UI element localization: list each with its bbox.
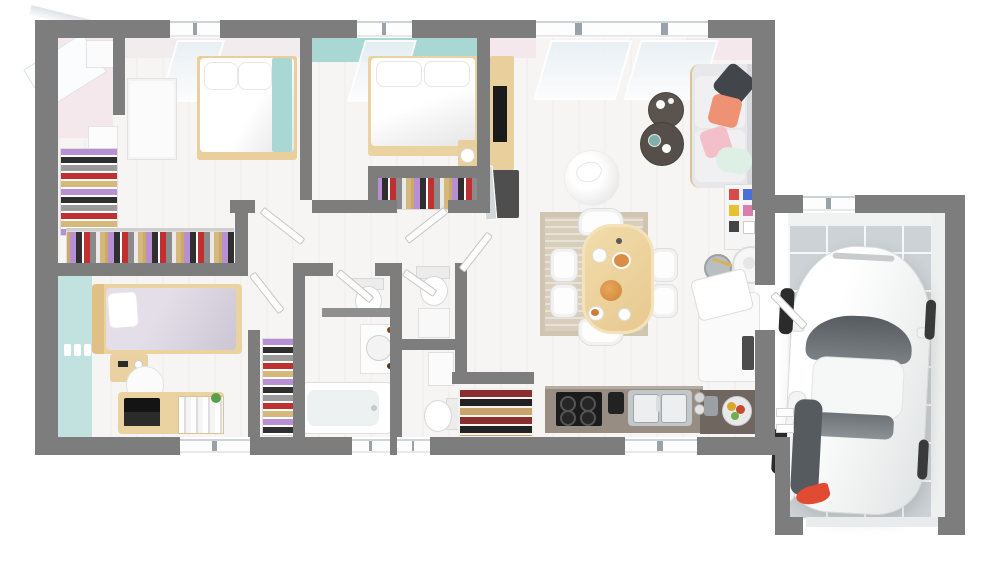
wall-pegs xyxy=(74,344,81,356)
wall-nook-stub xyxy=(113,33,125,115)
detergent xyxy=(743,221,755,234)
bed2-pillow xyxy=(376,61,422,87)
sink-unit xyxy=(628,390,692,426)
wall-hall-north xyxy=(312,200,397,213)
wall-bed2-closet-north xyxy=(368,166,477,178)
bed3-headboard xyxy=(92,284,104,354)
bed2-pillow xyxy=(424,61,470,87)
car xyxy=(777,242,939,519)
wall-shoe-closet-north xyxy=(452,372,534,384)
bread-boule xyxy=(600,280,622,301)
bed2-pot xyxy=(460,148,475,163)
burner xyxy=(580,410,596,426)
coffee-machine xyxy=(608,392,624,414)
car-roof xyxy=(810,356,905,421)
living-pink-wall-left xyxy=(490,38,536,58)
garage-wall-right xyxy=(945,195,965,535)
dining-chair xyxy=(650,284,678,318)
croissant xyxy=(591,309,599,316)
floor-plan xyxy=(0,0,1000,563)
stand-mixer xyxy=(704,396,718,416)
garage-wall-face-top xyxy=(788,213,945,226)
dish-orange xyxy=(612,252,631,269)
outer-wall-bottom xyxy=(390,437,397,455)
wall-pegs xyxy=(84,344,91,356)
shoe-shelf xyxy=(458,388,534,438)
wall-bed2-living xyxy=(477,38,490,213)
car-wheel xyxy=(924,299,936,339)
bathroom-shelf xyxy=(322,308,398,317)
pepper-dot xyxy=(616,238,622,244)
plate-small xyxy=(618,308,631,321)
bathtub xyxy=(298,382,396,434)
vanity-basin xyxy=(366,335,392,361)
wall-bathroom-west xyxy=(293,263,305,437)
window xyxy=(397,439,430,453)
garage-bracket xyxy=(776,424,794,433)
wall-pegs xyxy=(64,344,71,356)
garage-wall-left xyxy=(775,437,790,522)
car-wheel xyxy=(917,439,929,479)
washer-panel xyxy=(742,336,754,370)
plate-coffee xyxy=(592,248,607,263)
bedroom1-wardrobe xyxy=(127,78,177,160)
wall-bath-wc xyxy=(390,263,402,437)
car-door-glass xyxy=(790,399,823,496)
bedroom3-teal-wall xyxy=(58,276,92,437)
window-pane xyxy=(533,40,632,100)
plate-white xyxy=(662,144,671,153)
garage-window xyxy=(803,196,855,211)
phone xyxy=(118,361,128,367)
faucet xyxy=(656,396,660,412)
outer-wall-bottom xyxy=(697,437,775,455)
desk-plant xyxy=(211,393,221,403)
bathtub-drain xyxy=(371,405,377,411)
garage-wall-top xyxy=(775,195,803,213)
wall-bathroom-north xyxy=(293,263,333,276)
sink-basin xyxy=(661,394,687,423)
wall-wc-east xyxy=(455,263,467,384)
outer-wall-top xyxy=(220,20,357,38)
window xyxy=(622,21,708,37)
outer-wall-bottom xyxy=(35,437,180,455)
fruit xyxy=(731,412,739,420)
window xyxy=(180,439,250,453)
wall-bed1-bed2 xyxy=(300,38,312,200)
bathtub-basin xyxy=(307,390,379,426)
wall-dressing-bed3 xyxy=(58,263,248,276)
window xyxy=(352,439,390,453)
dressing-hanging-clothes xyxy=(66,231,236,264)
garage-shared-wall xyxy=(755,210,775,285)
wall-bed2-closet-stub xyxy=(368,166,378,212)
wall-bed3-closet xyxy=(248,330,260,437)
dressing-folded-clothes xyxy=(60,148,118,236)
laptop-keyboard xyxy=(124,412,160,426)
bed3-wardrobe xyxy=(262,338,296,436)
outer-wall-left xyxy=(35,20,58,455)
coffee-cup xyxy=(656,100,665,109)
burner xyxy=(560,410,576,426)
window xyxy=(170,21,220,37)
plate-green xyxy=(648,134,661,147)
bed3-pillow xyxy=(107,291,139,329)
garage-door-stub xyxy=(938,517,965,535)
wall-hall-north xyxy=(448,200,490,213)
laptop xyxy=(124,398,160,426)
wc2-toilet-bowl xyxy=(424,400,452,432)
outer-wall-right xyxy=(752,20,775,210)
bed1-pillow xyxy=(238,62,272,90)
garage-door-threshold xyxy=(806,517,938,527)
heater-cap xyxy=(743,257,755,269)
outer-wall-bottom xyxy=(430,437,625,455)
coffee-table-large xyxy=(640,122,684,166)
wc-cabinet xyxy=(418,308,450,338)
garage-shared-wall xyxy=(755,330,775,437)
window xyxy=(625,439,697,453)
garage-door-stub xyxy=(775,517,803,535)
tv-screen xyxy=(493,86,507,142)
bed1-teal-throw xyxy=(272,58,292,152)
detergent xyxy=(729,205,739,216)
window xyxy=(536,21,622,37)
coffee-cup xyxy=(668,98,674,104)
detergent xyxy=(729,189,739,200)
fruit xyxy=(727,402,736,411)
outer-wall-top xyxy=(412,20,536,38)
window xyxy=(357,21,412,37)
nook-cabinet xyxy=(86,40,116,68)
hob xyxy=(556,392,602,426)
garage-bracket xyxy=(776,408,794,417)
detergent xyxy=(729,221,739,232)
dining-chair xyxy=(650,248,678,282)
outer-wall-bottom xyxy=(250,437,352,455)
dining-chair xyxy=(550,284,578,318)
bed1-pillow xyxy=(204,62,238,90)
wc2-cabinet xyxy=(428,352,454,386)
car-rear-window xyxy=(815,412,894,440)
fruit-bowl xyxy=(722,396,752,426)
dining-chair xyxy=(550,248,578,282)
desk-organizer xyxy=(178,396,224,434)
